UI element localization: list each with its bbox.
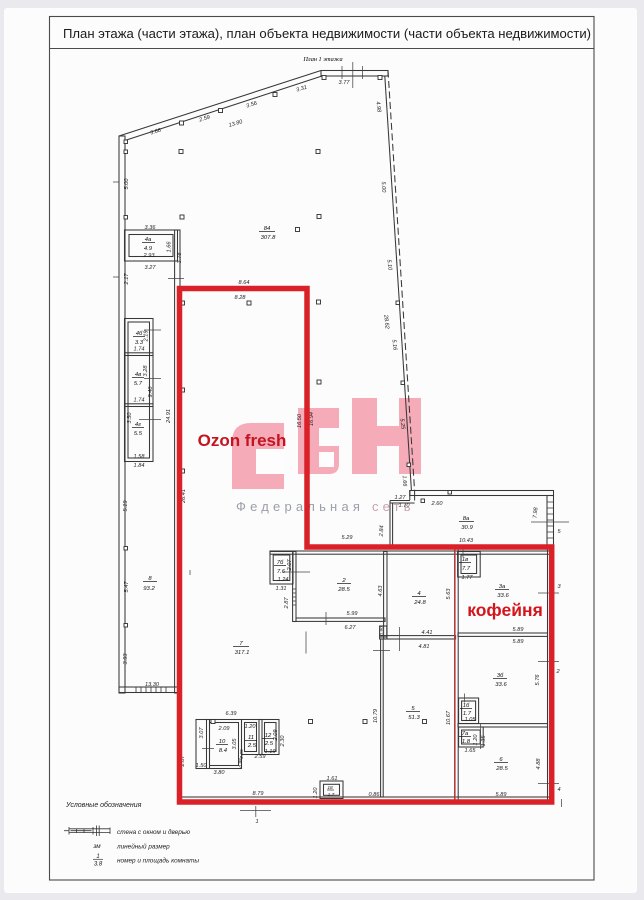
svg-text:2.93: 2.93 [143, 253, 156, 259]
svg-text:1.7: 1.7 [328, 792, 335, 798]
svg-text:5.76: 5.76 [535, 674, 541, 686]
svg-text:9.40: 9.40 [148, 386, 154, 398]
svg-text:1: 1 [255, 819, 258, 825]
svg-text:3.78: 3.78 [177, 252, 183, 264]
svg-text:2.87: 2.87 [284, 597, 290, 610]
svg-text:1.20: 1.20 [313, 787, 319, 799]
svg-text:317.1: 317.1 [235, 650, 250, 656]
svg-text:1.66: 1.66 [167, 241, 173, 253]
svg-text:16.50: 16.50 [297, 413, 303, 428]
svg-text:5: 5 [557, 529, 561, 535]
svg-text:2.19: 2.19 [144, 331, 150, 343]
svg-text:8.28: 8.28 [235, 295, 247, 301]
svg-text:2.84: 2.84 [379, 525, 386, 537]
svg-text:5.00: 5.00 [380, 181, 387, 193]
svg-text:13.30: 13.30 [145, 682, 160, 688]
svg-text:Ozon fresh: Ozon fresh [198, 431, 287, 450]
svg-text:1.61: 1.61 [327, 776, 338, 782]
svg-text:4: 4 [557, 787, 560, 793]
svg-text:Федеральная сеть: Федеральная сеть [236, 499, 415, 514]
svg-text:10.43: 10.43 [459, 538, 474, 544]
svg-text:1.20: 1.20 [473, 734, 479, 746]
svg-text:2.60: 2.60 [431, 501, 444, 507]
svg-text:1.74: 1.74 [134, 347, 145, 353]
svg-text:2.05: 2.05 [239, 749, 245, 760]
svg-text:0.90: 0.90 [379, 626, 385, 636]
svg-text:3.28: 3.28 [143, 365, 149, 377]
svg-text:5.89: 5.89 [496, 792, 507, 798]
svg-text:1.84: 1.84 [134, 463, 145, 469]
svg-text:5.99: 5.99 [347, 611, 358, 617]
svg-text:4.98: 4.98 [374, 101, 381, 113]
svg-text:1.58: 1.58 [134, 454, 146, 460]
svg-text:24.91: 24.91 [166, 409, 172, 424]
svg-text:4.41: 4.41 [422, 630, 433, 636]
svg-text:8.4: 8.4 [219, 748, 228, 754]
svg-text:2.5: 2.5 [264, 741, 274, 747]
svg-text:3.31: 3.31 [296, 85, 308, 94]
svg-text:зм: зм [92, 843, 101, 850]
svg-text:7.98: 7.98 [533, 506, 540, 518]
svg-text:5.25: 5.25 [398, 418, 405, 430]
svg-text:2.07: 2.07 [287, 559, 293, 572]
svg-text:8.79: 8.79 [253, 791, 264, 797]
svg-text:3.3: 3.3 [135, 340, 144, 346]
svg-text:1.50: 1.50 [196, 763, 208, 769]
svg-text:6.27: 6.27 [345, 625, 357, 631]
svg-text:1.27: 1.27 [395, 495, 407, 501]
svg-text:5.89: 5.89 [513, 627, 524, 633]
svg-text:5.63: 5.63 [446, 588, 452, 600]
svg-text:5.16: 5.16 [390, 339, 397, 351]
svg-text:4.63: 4.63 [378, 585, 384, 597]
svg-text:2: 2 [555, 669, 560, 675]
svg-text:93.2: 93.2 [143, 586, 155, 592]
svg-text:5.10: 5.10 [385, 259, 392, 271]
svg-text:1.65: 1.65 [465, 748, 477, 754]
svg-text:стена с окном и дверью: стена с окном и дверью [117, 828, 190, 836]
svg-text:24.8: 24.8 [413, 600, 426, 606]
svg-text:2.17: 2.17 [124, 273, 130, 286]
svg-text:5.00: 5.00 [124, 178, 130, 190]
svg-text:кофейня: кофейня [467, 600, 543, 620]
svg-text:3.93: 3.93 [123, 653, 129, 665]
svg-text:4.88: 4.88 [536, 758, 542, 770]
svg-text:1.66: 1.66 [401, 475, 408, 487]
svg-text:1.24: 1.24 [278, 577, 289, 583]
svg-text:линейный размер: линейный размер [116, 843, 170, 851]
svg-text:0.98: 0.98 [238, 758, 244, 768]
svg-text:8.64: 8.64 [239, 280, 250, 286]
svg-text:5.47: 5.47 [124, 581, 130, 593]
svg-text:28.5: 28.5 [337, 587, 350, 593]
svg-text:1.31: 1.31 [276, 586, 287, 592]
svg-text:13.80: 13.80 [228, 119, 244, 129]
svg-text:1.70: 1.70 [399, 503, 411, 509]
svg-text:10.67: 10.67 [446, 710, 452, 725]
svg-text:6.39: 6.39 [226, 711, 237, 717]
svg-text:51.3: 51.3 [408, 715, 420, 721]
svg-text:2.5: 2.5 [247, 743, 257, 749]
svg-text:3.05: 3.05 [232, 738, 238, 750]
svg-text:5.29: 5.29 [342, 535, 353, 541]
svg-text:1.74: 1.74 [134, 398, 145, 404]
svg-text:3.36: 3.36 [145, 225, 157, 231]
svg-text:5.5: 5.5 [134, 431, 143, 437]
svg-text:30.9: 30.9 [461, 525, 473, 531]
svg-text:1.8: 1.8 [462, 739, 471, 745]
svg-text:5.19: 5.19 [123, 501, 129, 512]
svg-text:7.7: 7.7 [462, 566, 471, 572]
svg-text:307.8: 307.8 [261, 235, 276, 241]
svg-text:План этажа (части этажа), план: План этажа (части этажа), план объекта н… [63, 26, 591, 41]
svg-text:7.6: 7.6 [277, 569, 286, 575]
svg-text:2.09: 2.09 [218, 726, 230, 732]
svg-text:номер и площадь комнаты: номер и площадь комнаты [117, 857, 199, 865]
svg-text:3.80: 3.80 [214, 770, 226, 776]
svg-text:5.7: 5.7 [134, 381, 143, 387]
svg-text:3.27: 3.27 [145, 265, 157, 271]
svg-text:84: 84 [264, 226, 271, 232]
svg-text:16.94: 16.94 [309, 412, 315, 426]
svg-text:3: 3 [557, 584, 561, 590]
svg-text:3.8: 3.8 [94, 862, 103, 868]
svg-text:3.07: 3.07 [199, 727, 205, 739]
svg-text:Условные обозначения: Условные обозначения [65, 801, 142, 809]
svg-text:5.89: 5.89 [513, 639, 524, 645]
svg-text:3.50: 3.50 [127, 412, 133, 424]
svg-text:1.05: 1.05 [465, 717, 477, 723]
svg-text:33.6: 33.6 [495, 682, 507, 688]
svg-text:2.30: 2.30 [280, 735, 286, 748]
svg-text:1.19: 1.19 [265, 749, 276, 755]
svg-text:1.35: 1.35 [481, 735, 487, 747]
svg-text:28.5: 28.5 [495, 766, 508, 772]
svg-text:4.9: 4.9 [144, 246, 153, 252]
svg-text:4.81: 4.81 [419, 644, 430, 650]
svg-text:3.77: 3.77 [339, 80, 351, 86]
svg-text:10.79: 10.79 [373, 709, 379, 723]
svg-text:0.86: 0.86 [369, 792, 381, 798]
svg-text:2.09: 2.09 [273, 730, 279, 742]
svg-text:33.6: 33.6 [497, 593, 509, 599]
svg-text:1.77: 1.77 [462, 575, 474, 581]
svg-text:3.56: 3.56 [246, 100, 259, 109]
svg-text:28.62: 28.62 [382, 314, 390, 330]
svg-text:1.20: 1.20 [245, 724, 257, 730]
svg-text:План 1 этажа: План 1 этажа [302, 56, 342, 63]
